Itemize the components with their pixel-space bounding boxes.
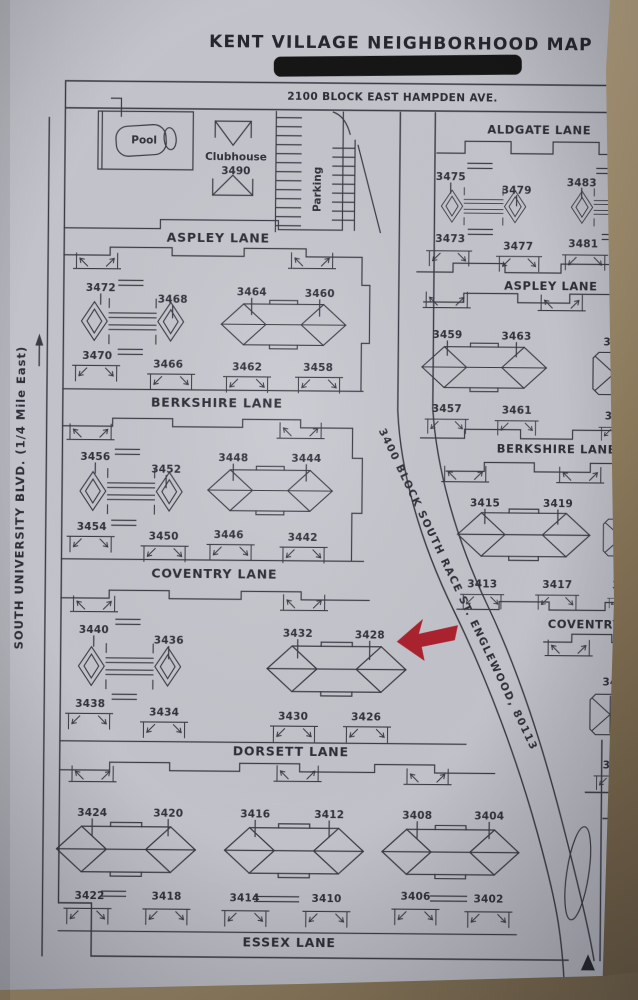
photo-vignette (0, 0, 638, 1000)
map-photo: KENT VILLAGE NEIGHBORHOOD MAP 2100 BLOCK… (0, 0, 638, 1000)
neighborhood-map-svg: KENT VILLAGE NEIGHBORHOOD MAP 2100 BLOCK… (0, 0, 638, 1000)
